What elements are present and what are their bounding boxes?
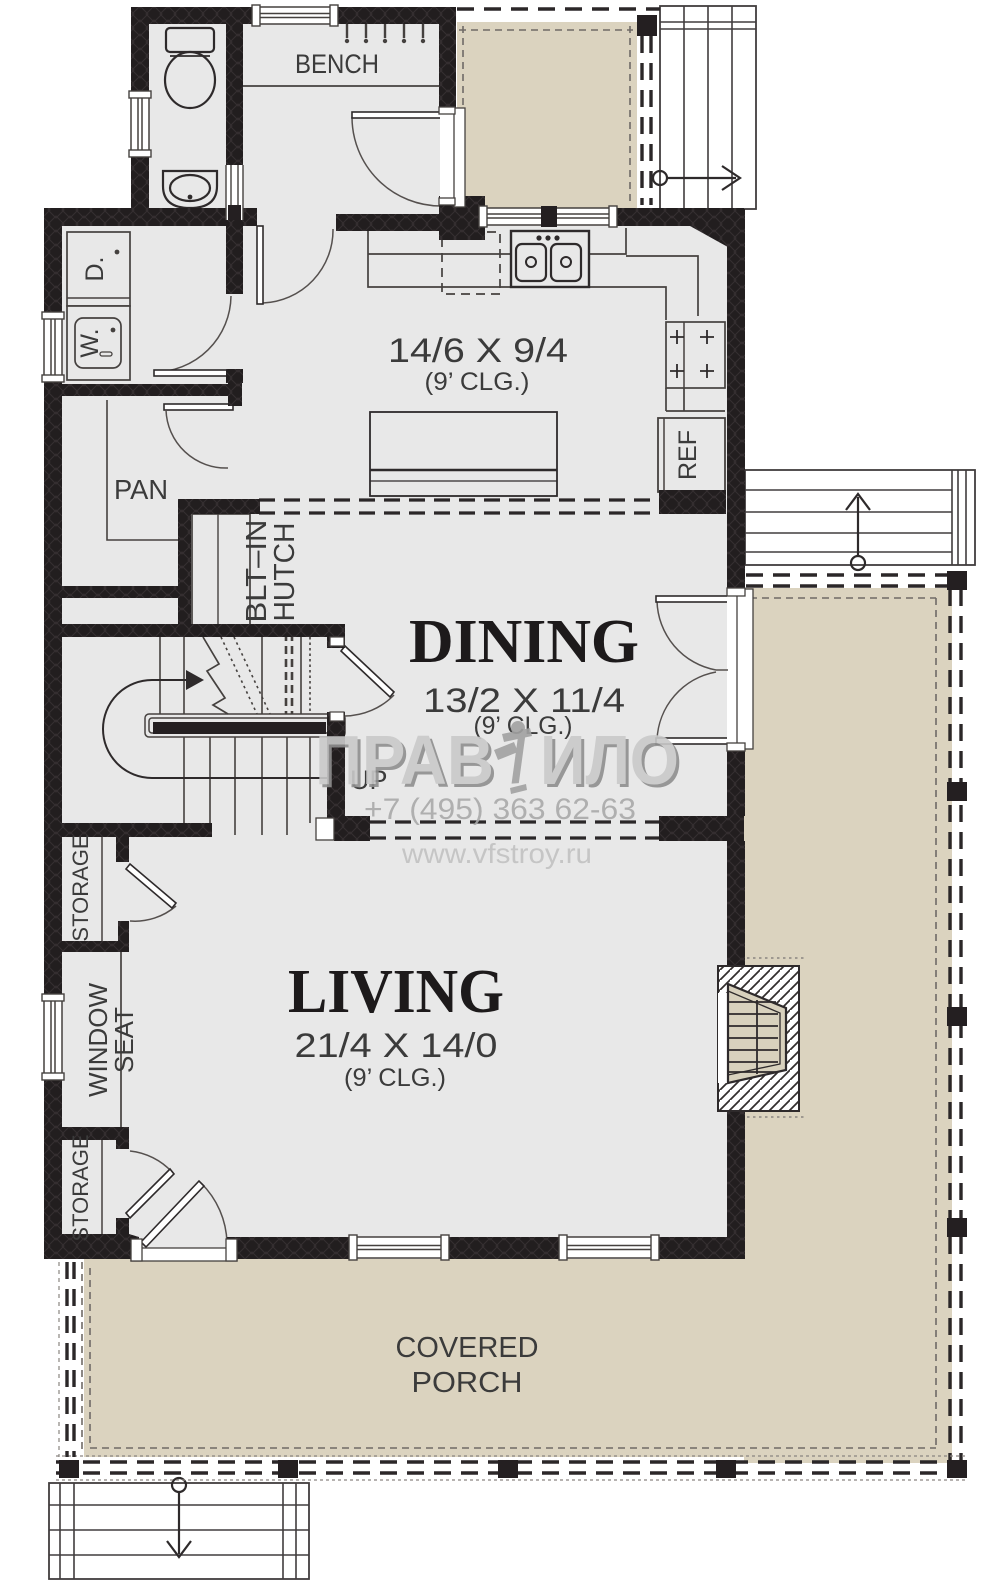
svg-text:DINING: DINING <box>409 608 639 676</box>
svg-text:ИЛО: ИЛО <box>540 721 679 799</box>
svg-text:LIVING: LIVING <box>288 958 504 1026</box>
svg-text:COVERED: COVERED <box>396 1332 539 1364</box>
svg-text:PAN: PAN <box>114 474 168 505</box>
svg-text:(9’ CLG.): (9’ CLG.) <box>344 1064 446 1092</box>
svg-text:STORAGE: STORAGE <box>68 1134 93 1241</box>
svg-text:STORAGE: STORAGE <box>68 834 93 941</box>
svg-text:BENCH: BENCH <box>295 49 379 79</box>
svg-text:www.vfstroy.ru: www.vfstroy.ru <box>401 838 592 869</box>
svg-text:ПРАВ: ПРАВ <box>315 721 494 799</box>
svg-text:21/4 X 14/0: 21/4 X 14/0 <box>295 1027 498 1065</box>
svg-text:PORCH: PORCH <box>412 1367 523 1399</box>
svg-text:+7 (495) 363 62-63: +7 (495) 363 62-63 <box>364 793 636 826</box>
svg-text:14/6 X 9/4: 14/6 X 9/4 <box>388 332 568 370</box>
svg-text:(9’ CLG.): (9’ CLG.) <box>425 368 530 396</box>
svg-text:W.: W. <box>76 328 104 357</box>
svg-text:HUTCH: HUTCH <box>269 523 301 622</box>
svg-text:SEAT: SEAT <box>109 1007 139 1073</box>
svg-text:REF: REF <box>674 430 702 480</box>
svg-text:D.: D. <box>81 257 109 282</box>
